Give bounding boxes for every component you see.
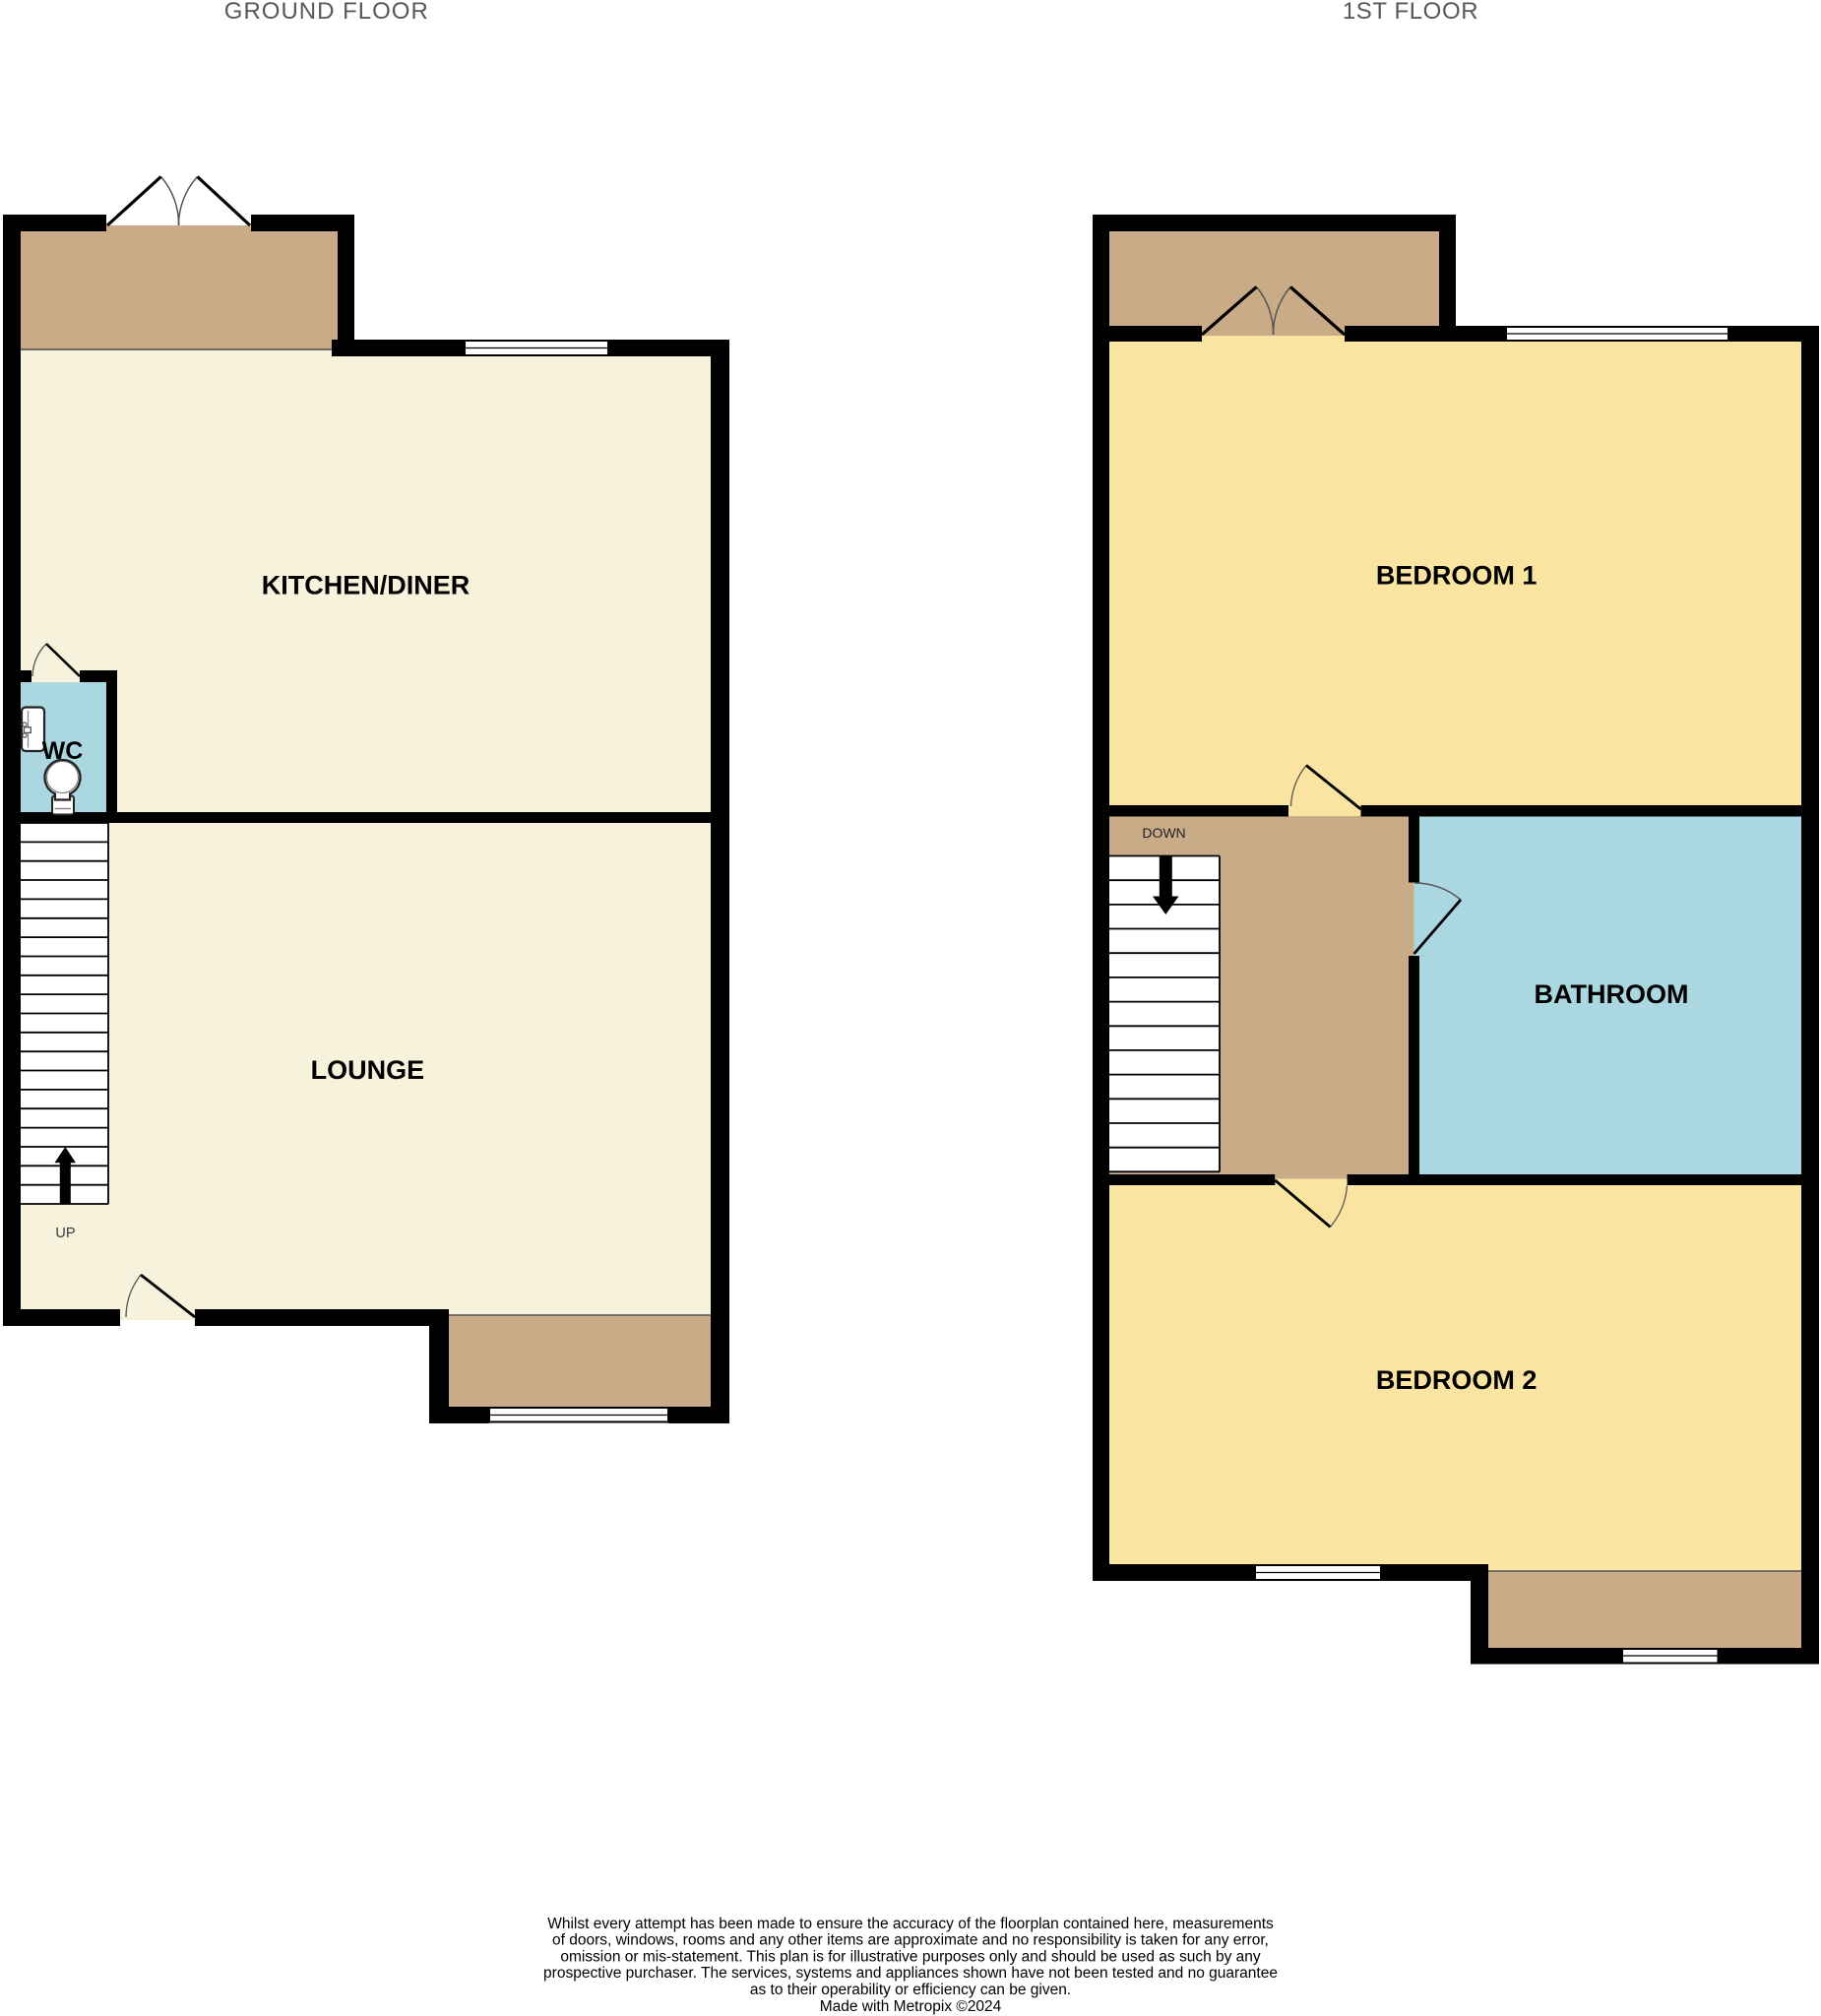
svg-text:BATHROOM: BATHROOM: [1535, 979, 1689, 1009]
svg-text:GROUND FLOOR: GROUND FLOOR: [224, 0, 429, 25]
svg-text:Made with Metropix ©2024: Made with Metropix ©2024: [820, 1998, 1002, 2015]
svg-text:of doors, windows, rooms and a: of doors, windows, rooms and any other i…: [552, 1932, 1269, 1949]
svg-text:KITCHEN/DINER: KITCHEN/DINER: [262, 571, 471, 600]
svg-text:LOUNGE: LOUNGE: [311, 1055, 425, 1085]
svg-text:1ST FLOOR: 1ST FLOOR: [1343, 0, 1478, 25]
svg-text:as to their operability or eff: as to their operability or efficiency ca…: [750, 1982, 1071, 1998]
svg-text:Whilst every attempt has been: Whilst every attempt has been made to en…: [547, 1916, 1274, 1932]
svg-text:UP: UP: [55, 1226, 75, 1241]
svg-text:BEDROOM 1: BEDROOM 1: [1376, 561, 1538, 591]
svg-text:DOWN: DOWN: [1142, 825, 1185, 841]
svg-text:WC: WC: [42, 737, 84, 765]
svg-text:prospective purchaser. The ser: prospective purchaser. The services, sys…: [543, 1965, 1278, 1982]
svg-text:BEDROOM 2: BEDROOM 2: [1376, 1365, 1538, 1395]
svg-text:omission or mis-statement. Thi: omission or mis-statement. This plan is …: [560, 1948, 1261, 1965]
